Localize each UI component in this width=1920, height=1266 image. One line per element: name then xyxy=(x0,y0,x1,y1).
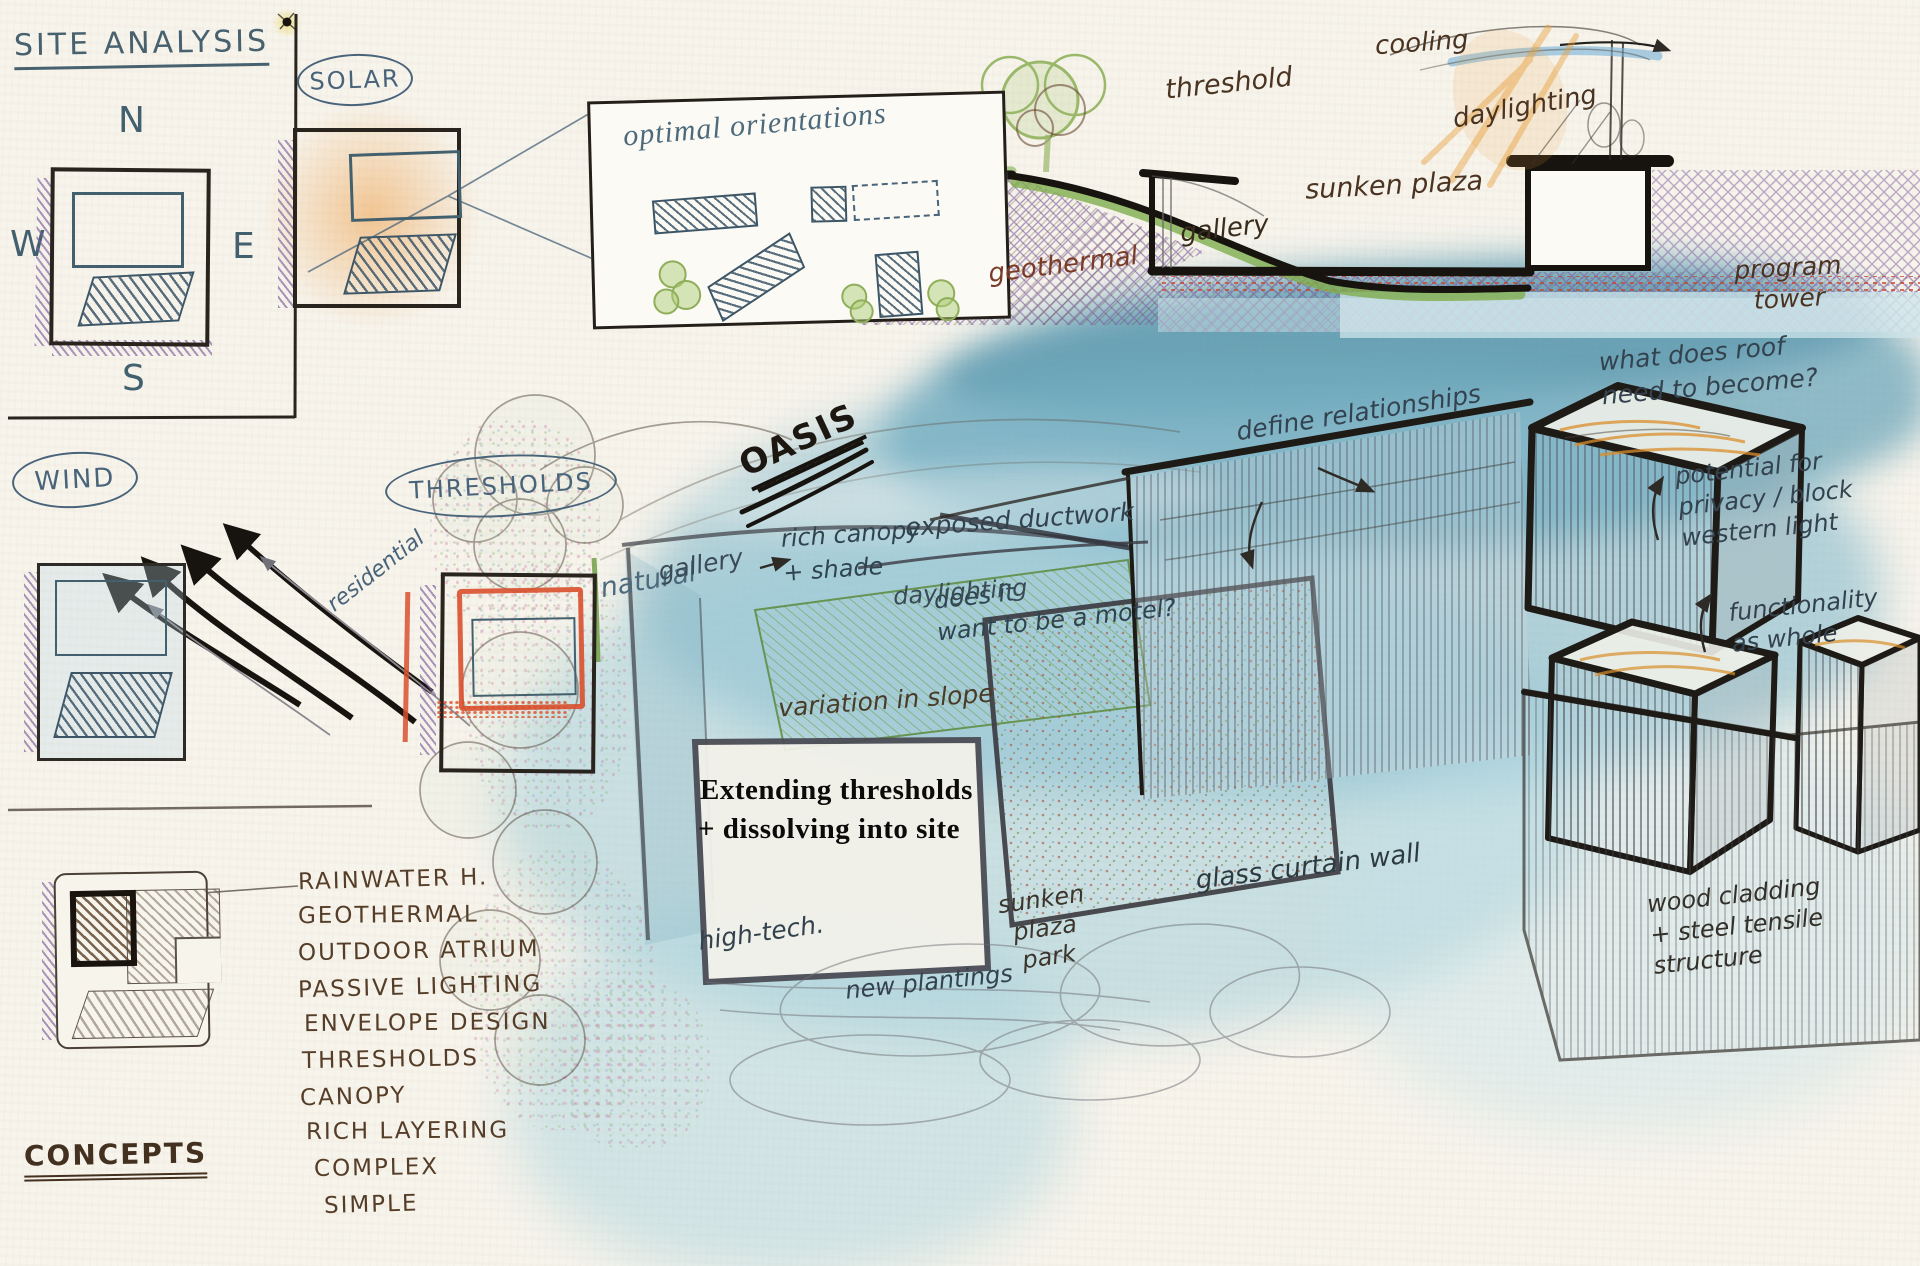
orientation-panel-title: optimal orientations xyxy=(622,97,888,154)
concept-item-outdoor-atrium: OUTDOOR ATRIUM xyxy=(298,936,551,966)
solar-building xyxy=(349,150,462,222)
concepts-bold-square xyxy=(70,890,137,967)
concept-item-canopy: CANOPY xyxy=(300,1079,551,1112)
thresholds-building xyxy=(471,617,576,697)
site-plan-parcel xyxy=(77,271,194,326)
sketchbook-page: SITE ANALYSIS N W E S SOLAR optimal orie… xyxy=(0,0,1920,1266)
concept-item-passive-lighting: PASSIVE LIGHTING xyxy=(298,971,551,1004)
concepts-list: RAINWATER H. GEOTHERMAL OUTDOOR ATRIUM P… xyxy=(298,866,550,1216)
tree-dot-5 xyxy=(849,299,874,324)
caption-line-2: + dissolving into site xyxy=(698,813,960,846)
orientation-square xyxy=(810,186,847,223)
orientation-panel: optimal orientations xyxy=(587,91,1011,330)
compass-n: N xyxy=(118,100,145,141)
compass-s: S xyxy=(122,358,145,399)
thresholds-red-speckle xyxy=(436,700,568,718)
compass-e: E xyxy=(232,226,255,267)
orientation-bar xyxy=(652,192,758,234)
wind-parcel xyxy=(53,672,173,738)
concept-item-geothermal: GEOTHERMAL xyxy=(298,901,551,929)
wind-building xyxy=(55,580,167,656)
thresholds-shadow-left xyxy=(420,585,436,755)
concepts-title: CONCEPTS xyxy=(24,1136,208,1181)
solar-shadow-left xyxy=(278,140,294,308)
concept-item-simple: SIMPLE xyxy=(324,1187,551,1219)
tree-dot-3 xyxy=(653,288,680,315)
orientation-dashed-bar xyxy=(852,180,940,221)
concepts-diagram-box xyxy=(53,871,210,1050)
section-label-program-tower: program tower xyxy=(1733,249,1843,317)
concepts-notch xyxy=(175,936,222,983)
note-rich-canopy: rich canopy + shade xyxy=(780,513,924,590)
orientation-vertical-bar xyxy=(875,251,924,318)
site-plan-building xyxy=(72,192,184,268)
note-wood-cladding: wood cladding + steel tensile structure xyxy=(1646,871,1829,982)
orientation-diagonal-bar xyxy=(707,232,805,322)
wind-shadow-left xyxy=(24,572,38,752)
note-privacy: potential for privacy / block western li… xyxy=(1674,443,1858,554)
solar-parcel xyxy=(343,233,457,294)
concepts-parcel xyxy=(72,989,215,1039)
concept-item-thresholds: THRESHOLDS xyxy=(302,1044,551,1074)
concept-item-envelope-design: ENVELOPE DESIGN xyxy=(304,1009,551,1037)
caption-line-1: Extending thresholds xyxy=(700,774,973,807)
site-analysis-title: SITE ANALYSIS xyxy=(14,24,270,70)
concept-item-complex: COMPLEX xyxy=(314,1152,551,1182)
concept-item-rich-layering: RICH LAYERING xyxy=(306,1117,551,1145)
concept-item-rainwater: RAINWATER H. xyxy=(298,863,551,896)
tree-dot-7 xyxy=(935,297,960,322)
